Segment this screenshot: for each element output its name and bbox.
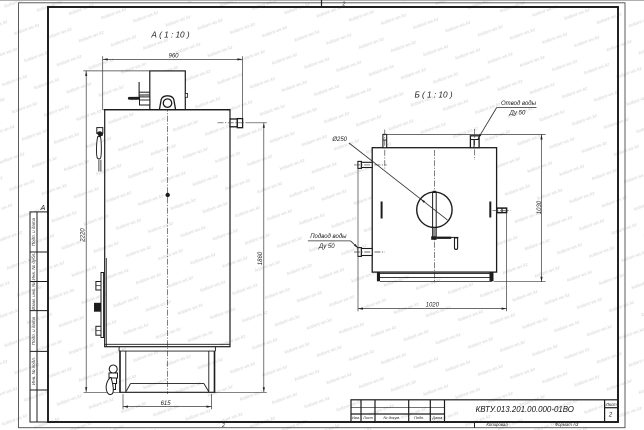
svg-text:Формат А3: Формат А3 [555,422,579,427]
svg-text:2: 2 [342,2,346,8]
svg-text:Подп.: Подп. [414,416,424,420]
svg-text:960: 960 [168,54,179,60]
svg-text:Лист: Лист [605,402,617,407]
svg-text:Изм.: Изм. [352,416,360,420]
svg-text:Подвод воды: Подвод воды [310,234,347,240]
svg-text:№ докум.: № докум. [383,416,400,420]
svg-text:Подп. и дата: Подп. и дата [31,316,36,345]
svg-text:Дата: Дата [431,416,442,420]
svg-text:Б ( 1 : 10 ): Б ( 1 : 10 ) [414,91,452,100]
svg-text:Инв. № дубл.: Инв. № дубл. [31,253,36,281]
svg-text:А ( 1 : 10 ): А ( 1 : 10 ) [150,31,189,40]
svg-text:КВТУ.013.201.00.000-01ВО: КВТУ.013.201.00.000-01ВО [476,405,574,414]
svg-text:А: А [40,205,46,212]
svg-text:2: 2 [608,413,613,419]
svg-text:Подп. и дата: Подп. и дата [31,217,36,246]
svg-text:2: 2 [221,423,225,429]
svg-text:Лист: Лист [362,416,373,420]
svg-text:1860: 1860 [258,251,264,265]
svg-text:Ø250: Ø250 [331,137,347,143]
svg-text:Ду 50: Ду 50 [509,111,526,117]
svg-text:Отвод воды: Отвод воды [501,101,537,107]
svg-text:Ду 50: Ду 50 [318,244,335,250]
svg-text:1020: 1020 [426,303,440,309]
svg-text:Инв. № подл.: Инв. № подл. [31,357,36,385]
svg-text:2220: 2220 [81,228,87,243]
svg-text:Копировал: Копировал [486,422,508,427]
svg-text:1030: 1030 [537,200,543,214]
svg-text:615: 615 [161,401,172,407]
svg-text:Взам. инв. №: Взам. инв. № [31,282,36,310]
